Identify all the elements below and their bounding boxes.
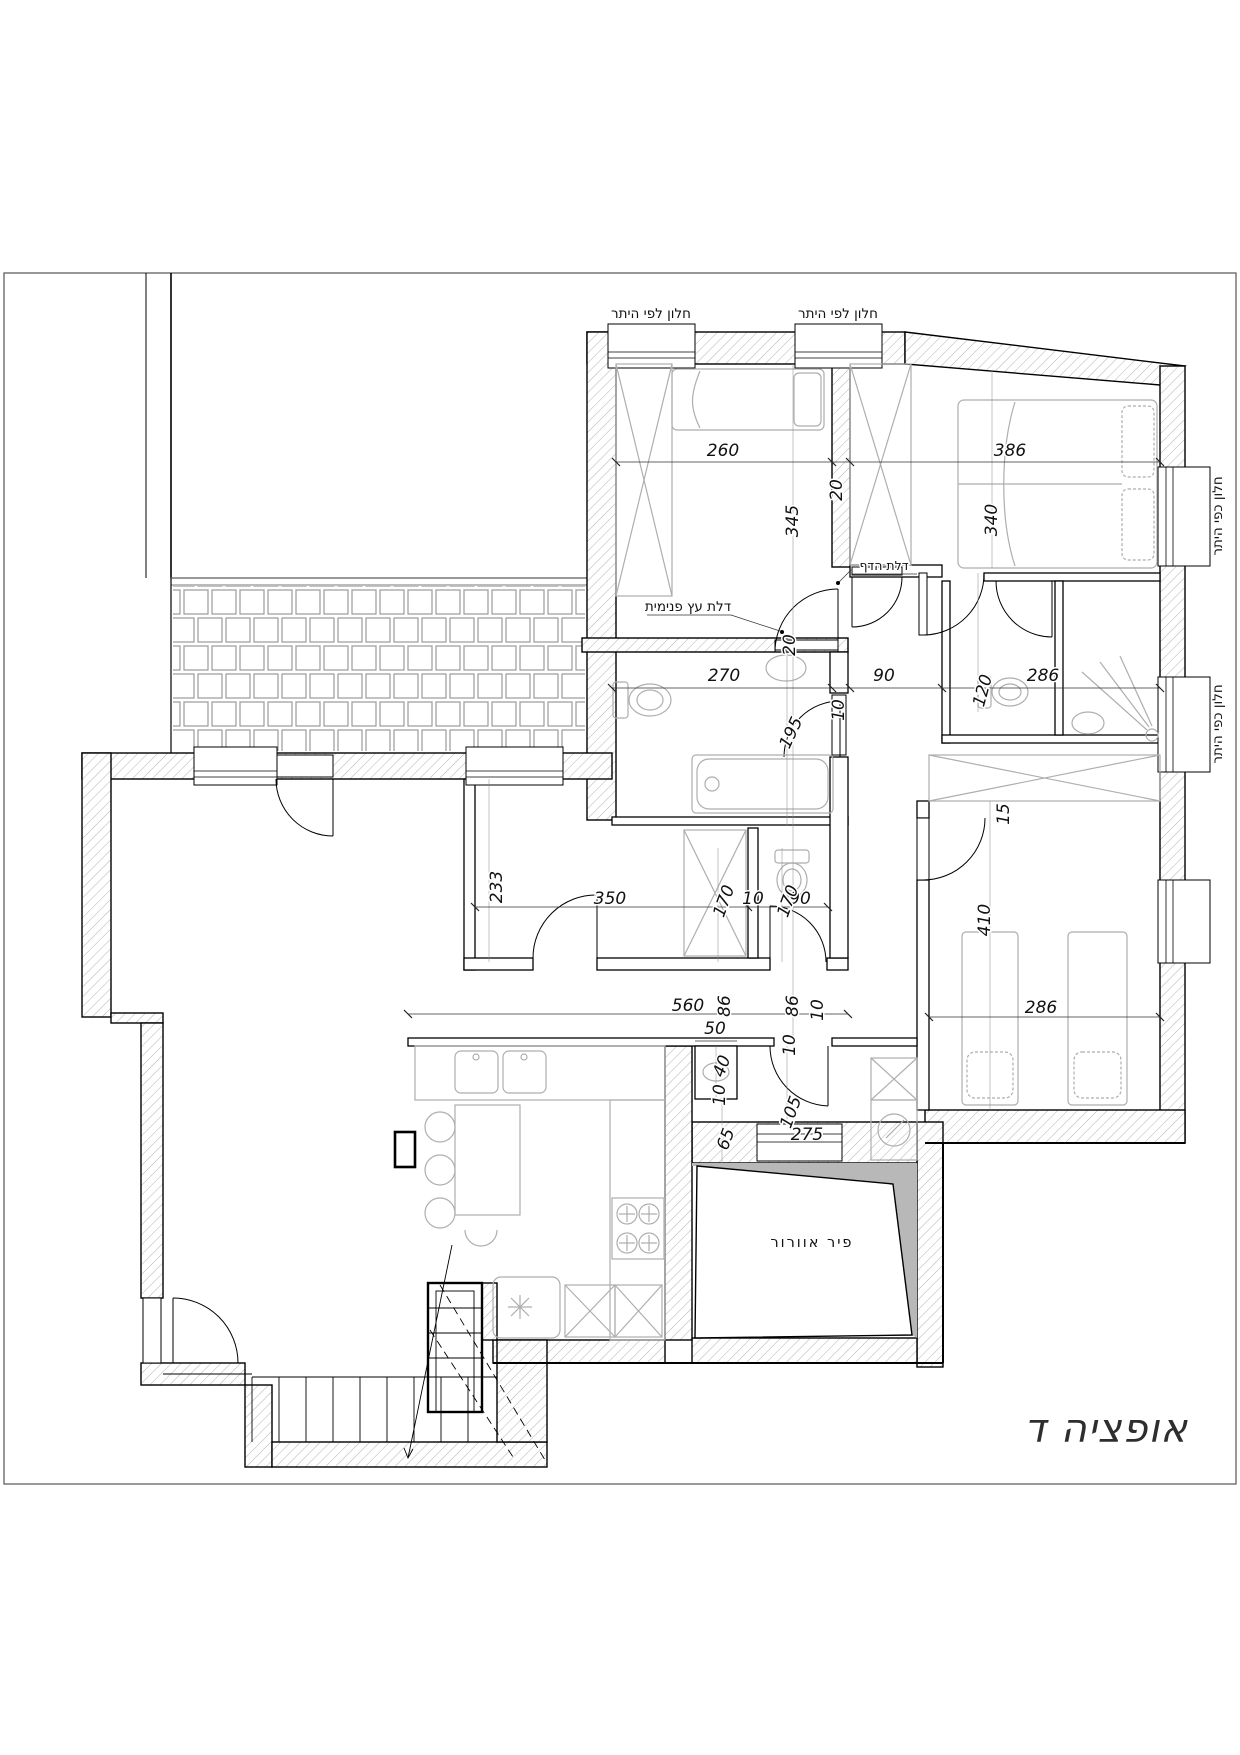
shower-spray: [1082, 656, 1158, 741]
dim-286a: 286: [1027, 666, 1060, 686]
floor-plan-sheet: 260 386 345 340 20 270 90 286 20 120 10 …: [0, 0, 1240, 1755]
dim-233: 233: [487, 871, 507, 903]
kids-bed-2: [1068, 932, 1127, 1105]
kids-wardrobe: [929, 755, 1160, 801]
dim-50: 50: [704, 1019, 726, 1039]
sheet-frame: [4, 273, 1236, 1484]
dim-270: 270: [708, 666, 740, 686]
dining-table: [425, 1105, 520, 1246]
label-vent-shaft: פיר אוורור: [770, 1235, 853, 1251]
bedroomA-wardrobe: [616, 364, 672, 596]
window-living-1: [194, 747, 277, 785]
floor-plan-drawing: 260 386 345 340 20 270 90 286 20 120 10 …: [0, 0, 1240, 1755]
wc-door: [996, 581, 1052, 637]
terrace-tiles: [173, 586, 585, 751]
window-right-3: [1158, 880, 1210, 963]
dim-170a: 170: [709, 883, 739, 920]
bathroom-sink: [766, 655, 806, 681]
wall-stairs-block: [497, 1340, 547, 1442]
master-bed: [958, 400, 1157, 568]
dim-10b: 10: [742, 889, 764, 909]
dim-286b: 286: [1025, 998, 1058, 1018]
dim-120: 120: [969, 672, 997, 709]
master-wardrobe: [850, 364, 911, 565]
dim-560: 560: [672, 996, 704, 1016]
wall-living-left-lower: [141, 1023, 163, 1298]
label-window-permit-right-2: חלון כפי היתר: [1210, 684, 1226, 763]
dim-20b: 20: [780, 634, 800, 656]
kitchen-cabinet-x: [565, 1285, 662, 1337]
label-window-permit-right-1: חלון כפי היתר: [1210, 476, 1226, 555]
dim-10c: 10: [808, 999, 828, 1021]
freezer-unit: [493, 1277, 560, 1338]
bathroom-toilet: [613, 682, 671, 718]
dim-86a: 86: [715, 995, 735, 1017]
dim-260: 260: [707, 441, 739, 461]
window-right-2: [1158, 677, 1210, 772]
window-top-2: [795, 324, 882, 368]
terrace: [171, 578, 587, 753]
stove: [612, 1198, 664, 1259]
page-title: אופציה ד: [1024, 1406, 1188, 1452]
wall-kitchen-right: [665, 1046, 692, 1340]
kitchen-counter: [415, 1046, 665, 1340]
dim-386: 386: [994, 441, 1027, 461]
shower-sink: [1072, 712, 1104, 734]
dim-86b: 86: [783, 995, 803, 1017]
dim-275: 275: [791, 1125, 823, 1145]
dim-15: 15: [994, 803, 1014, 825]
window-living-2: [466, 747, 563, 785]
label-window-permit-top-1: חלון לפי היתר: [611, 306, 691, 322]
exterior-walls: [82, 332, 1185, 1467]
svg-text:דלת עץ פנימית: דלת עץ פנימית: [645, 599, 731, 615]
label-inner-wood-door: דלת עץ פנימית: [645, 599, 784, 634]
wall-diagonal: [905, 332, 1185, 385]
wall-kids-bottom: [925, 1110, 1185, 1143]
wall-shaft-right: [917, 1122, 943, 1367]
wall-left-column: [587, 332, 616, 820]
wall-step: [111, 1013, 163, 1023]
dim-410: 410: [975, 904, 995, 936]
column: [395, 1132, 415, 1167]
master-door: [919, 573, 984, 635]
kitchen-sink: [455, 1051, 546, 1093]
dim-345: 345: [783, 505, 803, 537]
window-right-1: [1158, 467, 1210, 566]
dim-195: 195: [776, 714, 808, 752]
dim-350: 350: [594, 889, 626, 909]
dim-340: 340: [982, 504, 1002, 536]
label-window-permit-top-2: חלון לפי היתר: [798, 306, 878, 322]
storage-door: [533, 895, 597, 958]
kids-door: [917, 818, 985, 880]
wall-living-left-upper: [82, 753, 111, 1017]
window-top-1: [608, 324, 695, 368]
dim-10e: 10: [710, 1084, 730, 1106]
dim-10a: 10: [829, 699, 849, 721]
bedroomA-bed: [672, 369, 824, 430]
terrace-door: [276, 755, 333, 836]
dim-10d: 10: [780, 1034, 800, 1056]
staircase: [163, 1245, 545, 1460]
wall-stairs-strip: [482, 1283, 497, 1340]
wall-entry-jamb: [245, 1385, 272, 1467]
bathtub: [692, 755, 833, 813]
wall-shaft-bottom: [692, 1338, 917, 1363]
dim-90a: 90: [873, 666, 895, 686]
svg-text:דלת הדף: דלת הדף: [859, 558, 908, 573]
dim-20a: 20: [827, 479, 847, 501]
entrance-door: [143, 1298, 238, 1363]
